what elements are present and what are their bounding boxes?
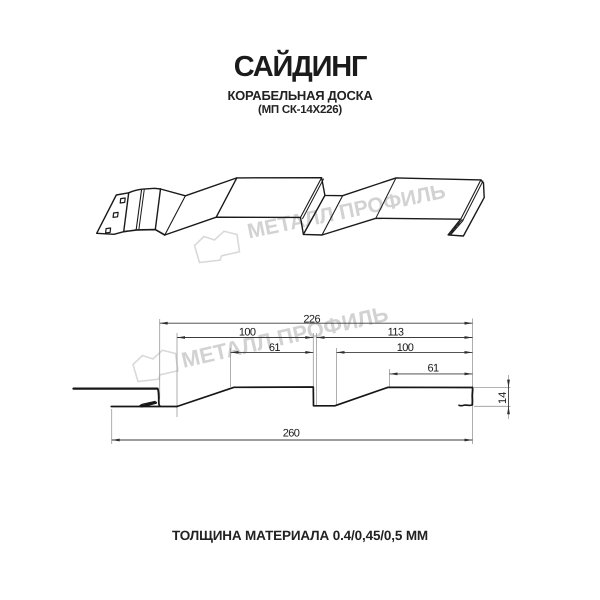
- svg-text:61: 61: [427, 363, 439, 375]
- svg-text:100: 100: [239, 327, 256, 339]
- svg-text:226: 226: [303, 313, 320, 325]
- svg-text:260: 260: [283, 427, 300, 439]
- svg-text:МЕТАЛЛ ПРОФИЛЬ: МЕТАЛЛ ПРОФИЛЬ: [245, 180, 447, 243]
- svg-text:100: 100: [397, 342, 414, 354]
- svg-text:113: 113: [388, 327, 404, 339]
- svg-text:61: 61: [269, 342, 281, 354]
- svg-text:14: 14: [497, 392, 509, 404]
- svg-text:МЕТАЛЛ ПРОФИЛЬ: МЕТАЛЛ ПРОФИЛЬ: [179, 301, 391, 373]
